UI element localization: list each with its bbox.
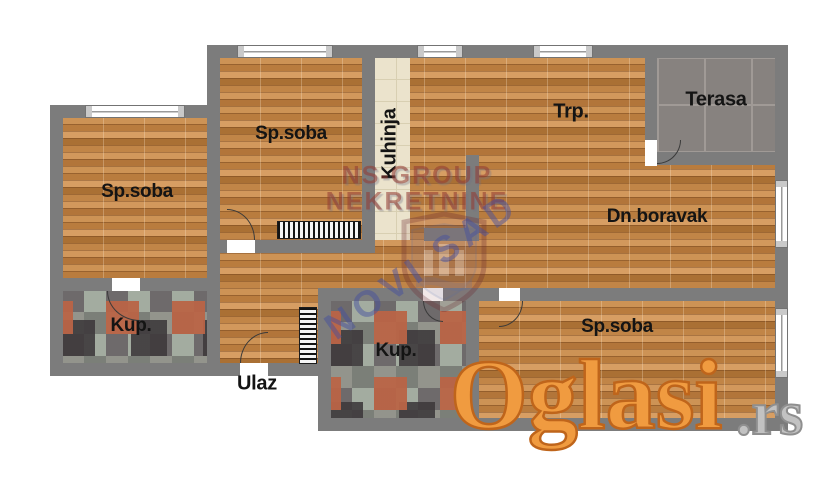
radiator <box>299 307 317 364</box>
floor-plan: Sp.soba Sp.soba Kuhinja Trp. Terasa Dn.b… <box>0 0 833 484</box>
window <box>417 45 463 58</box>
radiator <box>277 221 361 239</box>
site-tld-watermark: .rs <box>736 383 803 445</box>
window <box>775 180 788 248</box>
wall-kitchen-left <box>362 45 375 252</box>
room-bedroom-left-floor <box>62 117 207 290</box>
wall-left <box>50 105 63 376</box>
door-gap-terrace <box>645 140 657 166</box>
room-label-dining: Trp. <box>553 101 588 124</box>
window <box>85 105 185 118</box>
site-watermark: Oglasi <box>450 345 722 445</box>
room-label-bathroom-left: Kup. <box>110 315 151 337</box>
window <box>533 45 593 58</box>
wall-bottom-left <box>50 363 330 376</box>
wall-terrace-left <box>645 45 657 152</box>
room-label-terrace: Terasa <box>685 89 746 112</box>
window <box>775 308 788 378</box>
door-gap-bathroom-left <box>112 278 140 291</box>
wall-mid-vertical <box>207 45 220 376</box>
room-label-bedroom-bottom: Sp.soba <box>581 316 653 338</box>
room-label-bedroom-top: Sp.soba <box>255 123 327 145</box>
room-label-bedroom-left: Sp.soba <box>101 181 173 203</box>
door-gap-bedroom-top <box>227 240 255 253</box>
room-label-bathroom-middle: Kup. <box>375 340 416 362</box>
window <box>237 45 333 58</box>
room-label-entrance: Ulaz <box>237 373 277 396</box>
door-gap-bedroom-bottom <box>499 288 520 301</box>
agency-watermark-line1: NS-GROUP <box>342 162 493 191</box>
room-label-living: Dn.boravak <box>607 206 707 228</box>
